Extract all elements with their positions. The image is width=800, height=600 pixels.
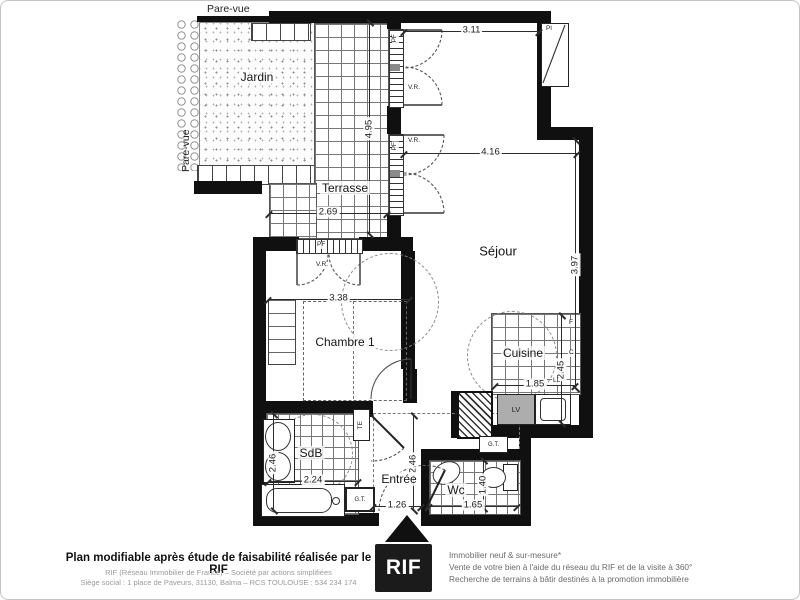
room-label-terrasse: Terrasse — [320, 181, 370, 195]
closet-tag: Pl — [545, 26, 553, 33]
pf-tag: PF — [392, 33, 399, 43]
footer-company-line1: RIF (Réseau Immobilier de France) – Soci… — [71, 568, 366, 578]
entrance-arrow — [385, 515, 429, 542]
dim-wc-width: 1.65 — [429, 506, 517, 507]
dim-kitchen-width: 1.85 — [495, 385, 575, 386]
vr-tag: V.R. — [407, 138, 421, 145]
dim-entry-width: 1.26 — [373, 506, 421, 507]
room-label-jardin: Jardin — [239, 70, 276, 84]
room-label-chambre: Chambre 1 — [313, 335, 376, 349]
vr-tag: V.R. — [407, 85, 421, 92]
dim-bedroom-width: 3.38 — [268, 299, 409, 300]
footer-service-line1: Immobilier neuf & sur-mesure* — [449, 549, 561, 561]
pf-tag: PF — [392, 141, 399, 151]
footer-company-line2: Siège social : 1 place de Paveurs, 31130… — [71, 578, 366, 588]
vr-tag: V.R. — [315, 262, 329, 269]
dim-bathroom-width: 2.24 — [268, 481, 358, 482]
room-label-wc: Wc — [445, 483, 466, 497]
dim-sejour-width: 4.16 — [404, 153, 577, 154]
dim-bathroom-height: 2.46 — [273, 415, 274, 511]
room-label-sejour: Séjour — [477, 244, 519, 259]
floor-plan-canvas: LV G.T. G.T. TE — [0, 0, 800, 600]
pare-vue-left-label: Pare-vue — [180, 102, 192, 172]
footer-service-line3: Recherche de terrains à bâtir destinés à… — [449, 573, 689, 585]
washer-tag: LL — [552, 378, 561, 385]
dim-sejour-top: 3.11 — [404, 31, 539, 32]
cooktop-tag: C — [568, 350, 575, 357]
room-label-entree: Entrée — [379, 472, 418, 486]
pf-tag: PF — [316, 242, 326, 249]
fridge-tag: F — [568, 320, 574, 327]
dim-entry-height: 2.46 — [413, 416, 414, 511]
room-label-sdb: SdB — [298, 446, 325, 460]
dim-terrace-height: 4.95 — [369, 23, 370, 235]
dim-sejour-height: 3.97 — [575, 141, 576, 389]
room-label-cuisine: Cuisine — [501, 346, 545, 360]
dim-kitchen-height: 2.45 — [561, 316, 562, 424]
dim-terrace-width: 2.69 — [269, 213, 387, 214]
rif-logo: RIF — [375, 544, 432, 592]
pare-vue-top-label: Pare-vue — [207, 3, 250, 15]
footer-service-line2: Vente de votre bien à l'aide du réseau d… — [449, 561, 692, 573]
